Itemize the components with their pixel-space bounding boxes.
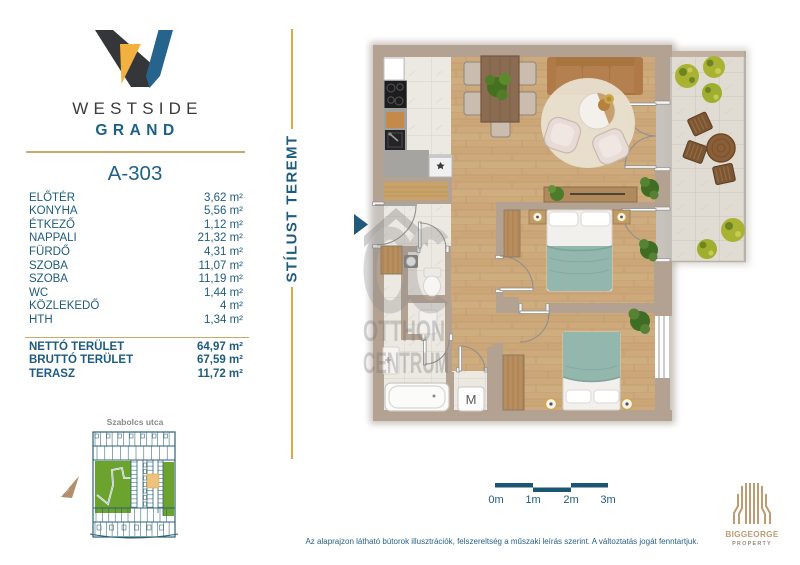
- svg-text:3m: 3m: [600, 494, 615, 506]
- svg-text:0m: 0m: [488, 494, 503, 506]
- svg-text:OTTHON: OTTHON: [363, 315, 445, 348]
- svg-text:PROPERTY: PROPERTY: [732, 541, 772, 547]
- svg-text:1m: 1m: [525, 494, 540, 506]
- svg-text:2m: 2m: [563, 494, 578, 506]
- svg-text:M: M: [466, 392, 477, 407]
- svg-text:CENTRUM: CENTRUM: [363, 347, 449, 380]
- svg-text:BIGGEORGE: BIGGEORGE: [725, 530, 778, 539]
